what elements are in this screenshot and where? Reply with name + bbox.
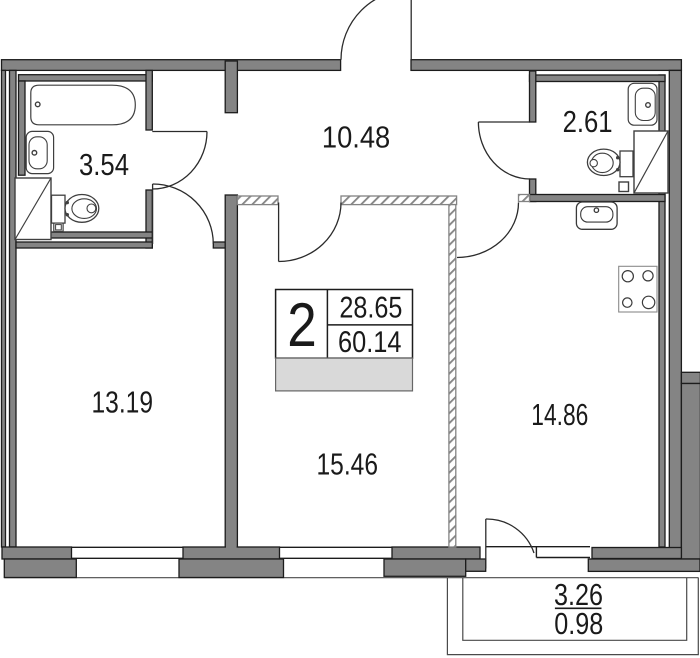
svg-text:60.14: 60.14 (338, 326, 402, 359)
svg-text:0.98: 0.98 (554, 607, 603, 641)
svg-text:2: 2 (287, 291, 317, 360)
svg-text:10.48: 10.48 (322, 120, 390, 154)
svg-text:14.86: 14.86 (531, 398, 588, 432)
svg-text:2.61: 2.61 (563, 105, 613, 139)
svg-text:3.54: 3.54 (79, 148, 129, 182)
svg-text:13.19: 13.19 (92, 386, 154, 420)
svg-text:15.46: 15.46 (317, 448, 379, 482)
svg-text:28.65: 28.65 (339, 292, 402, 325)
